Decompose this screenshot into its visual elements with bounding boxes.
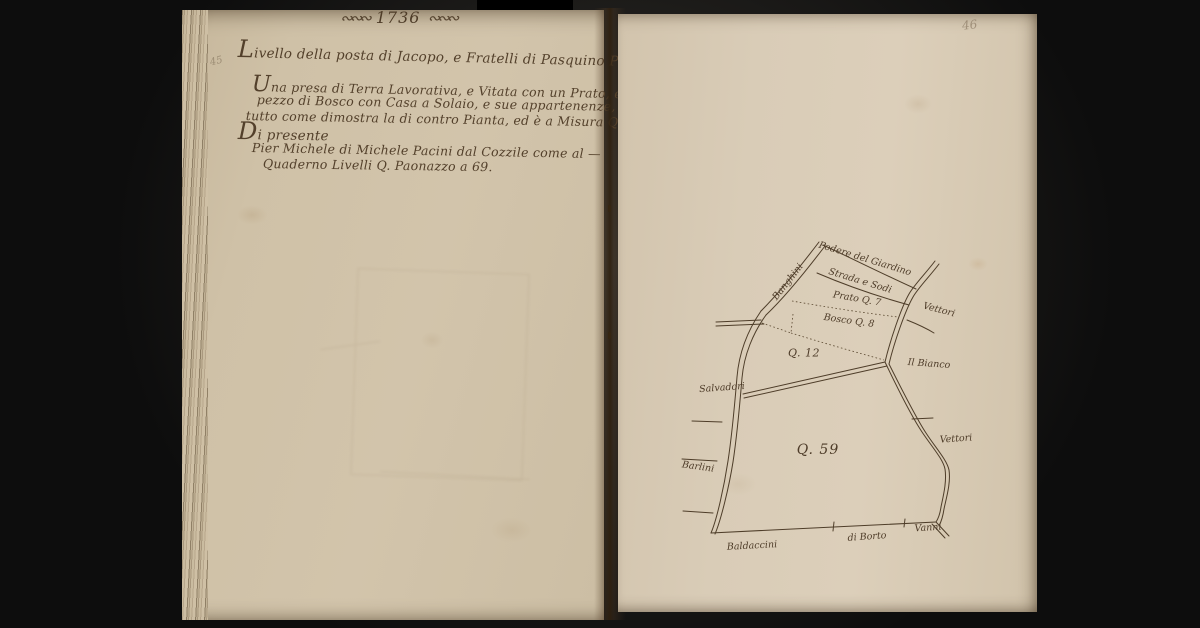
- tenant-line-2: Quaderno Livelli Q. Paonazzo a 69.: [263, 156, 493, 174]
- binding-stitch: [608, 332, 611, 339]
- map-label-vettori-right: Vettori: [939, 432, 972, 445]
- left-folio-number: 45: [209, 55, 224, 69]
- map-label-vanni: Vanni: [914, 522, 942, 535]
- year-header: ∾∾∾ 1736 ∾∾∾: [340, 8, 456, 27]
- page-edges: [182, 10, 208, 620]
- cadastral-map: Podere del Giardino Strada e Sodi Prato …: [640, 235, 990, 567]
- right-page: 46: [618, 14, 1037, 612]
- map-label-q12: Q. 12: [788, 347, 820, 360]
- map-drawing: [640, 235, 990, 567]
- flourish-right-icon: ∾∾∾: [427, 9, 456, 27]
- left-page: 45 ∾∾∾ 1736 ∾∾∾ Livello della posta di J…: [182, 10, 604, 620]
- show-through-ghost: [310, 225, 580, 545]
- photo-backdrop: 45 ∾∾∾ 1736 ∾∾∾ Livello della posta di J…: [0, 0, 1200, 628]
- year-text: 1736: [376, 8, 421, 27]
- map-label-q59: Q. 59: [797, 442, 840, 458]
- right-folio-number: 46: [961, 17, 978, 33]
- entry-title: Livello della posta di Jacopo, e Fratell…: [238, 40, 653, 70]
- flourish-left-icon: ∾∾∾: [340, 9, 369, 27]
- binding-stitch: [608, 205, 611, 212]
